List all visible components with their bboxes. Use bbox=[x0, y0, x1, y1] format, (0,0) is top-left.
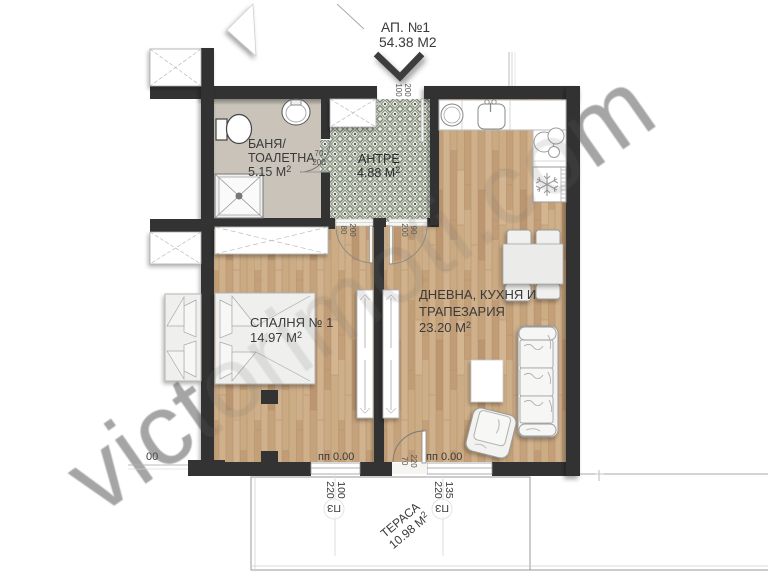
svg-text:70: 70 bbox=[315, 149, 324, 158]
svg-text:АП. №1: АП. №1 bbox=[381, 20, 430, 35]
svg-text:135220: 135220 bbox=[432, 481, 455, 499]
svg-text:54.38 М2: 54.38 М2 bbox=[379, 35, 437, 50]
svg-text:АНТРЕ: АНТРЕ bbox=[358, 152, 400, 166]
svg-text:200: 200 bbox=[312, 158, 326, 167]
svg-text:100220: 100220 bbox=[324, 481, 347, 499]
svg-text:23.20 М2: 23.20 М2 bbox=[419, 320, 471, 335]
svg-text:200100: 200100 bbox=[394, 83, 412, 97]
svg-text:пп 0.00: пп 0.00 bbox=[318, 451, 354, 463]
svg-text:ПЗ: ПЗ bbox=[435, 502, 449, 514]
svg-text:БАНЯ/: БАНЯ/ bbox=[248, 137, 286, 151]
svg-text:ТОАЛЕТНА: ТОАЛЕТНА bbox=[248, 151, 315, 165]
svg-text:5.15 М2: 5.15 М2 bbox=[248, 164, 291, 179]
svg-text:ПЗ: ПЗ bbox=[327, 502, 341, 514]
svg-text:4.88 М2: 4.88 М2 bbox=[357, 165, 400, 180]
svg-text:пп 0.00: пп 0.00 bbox=[426, 451, 462, 463]
